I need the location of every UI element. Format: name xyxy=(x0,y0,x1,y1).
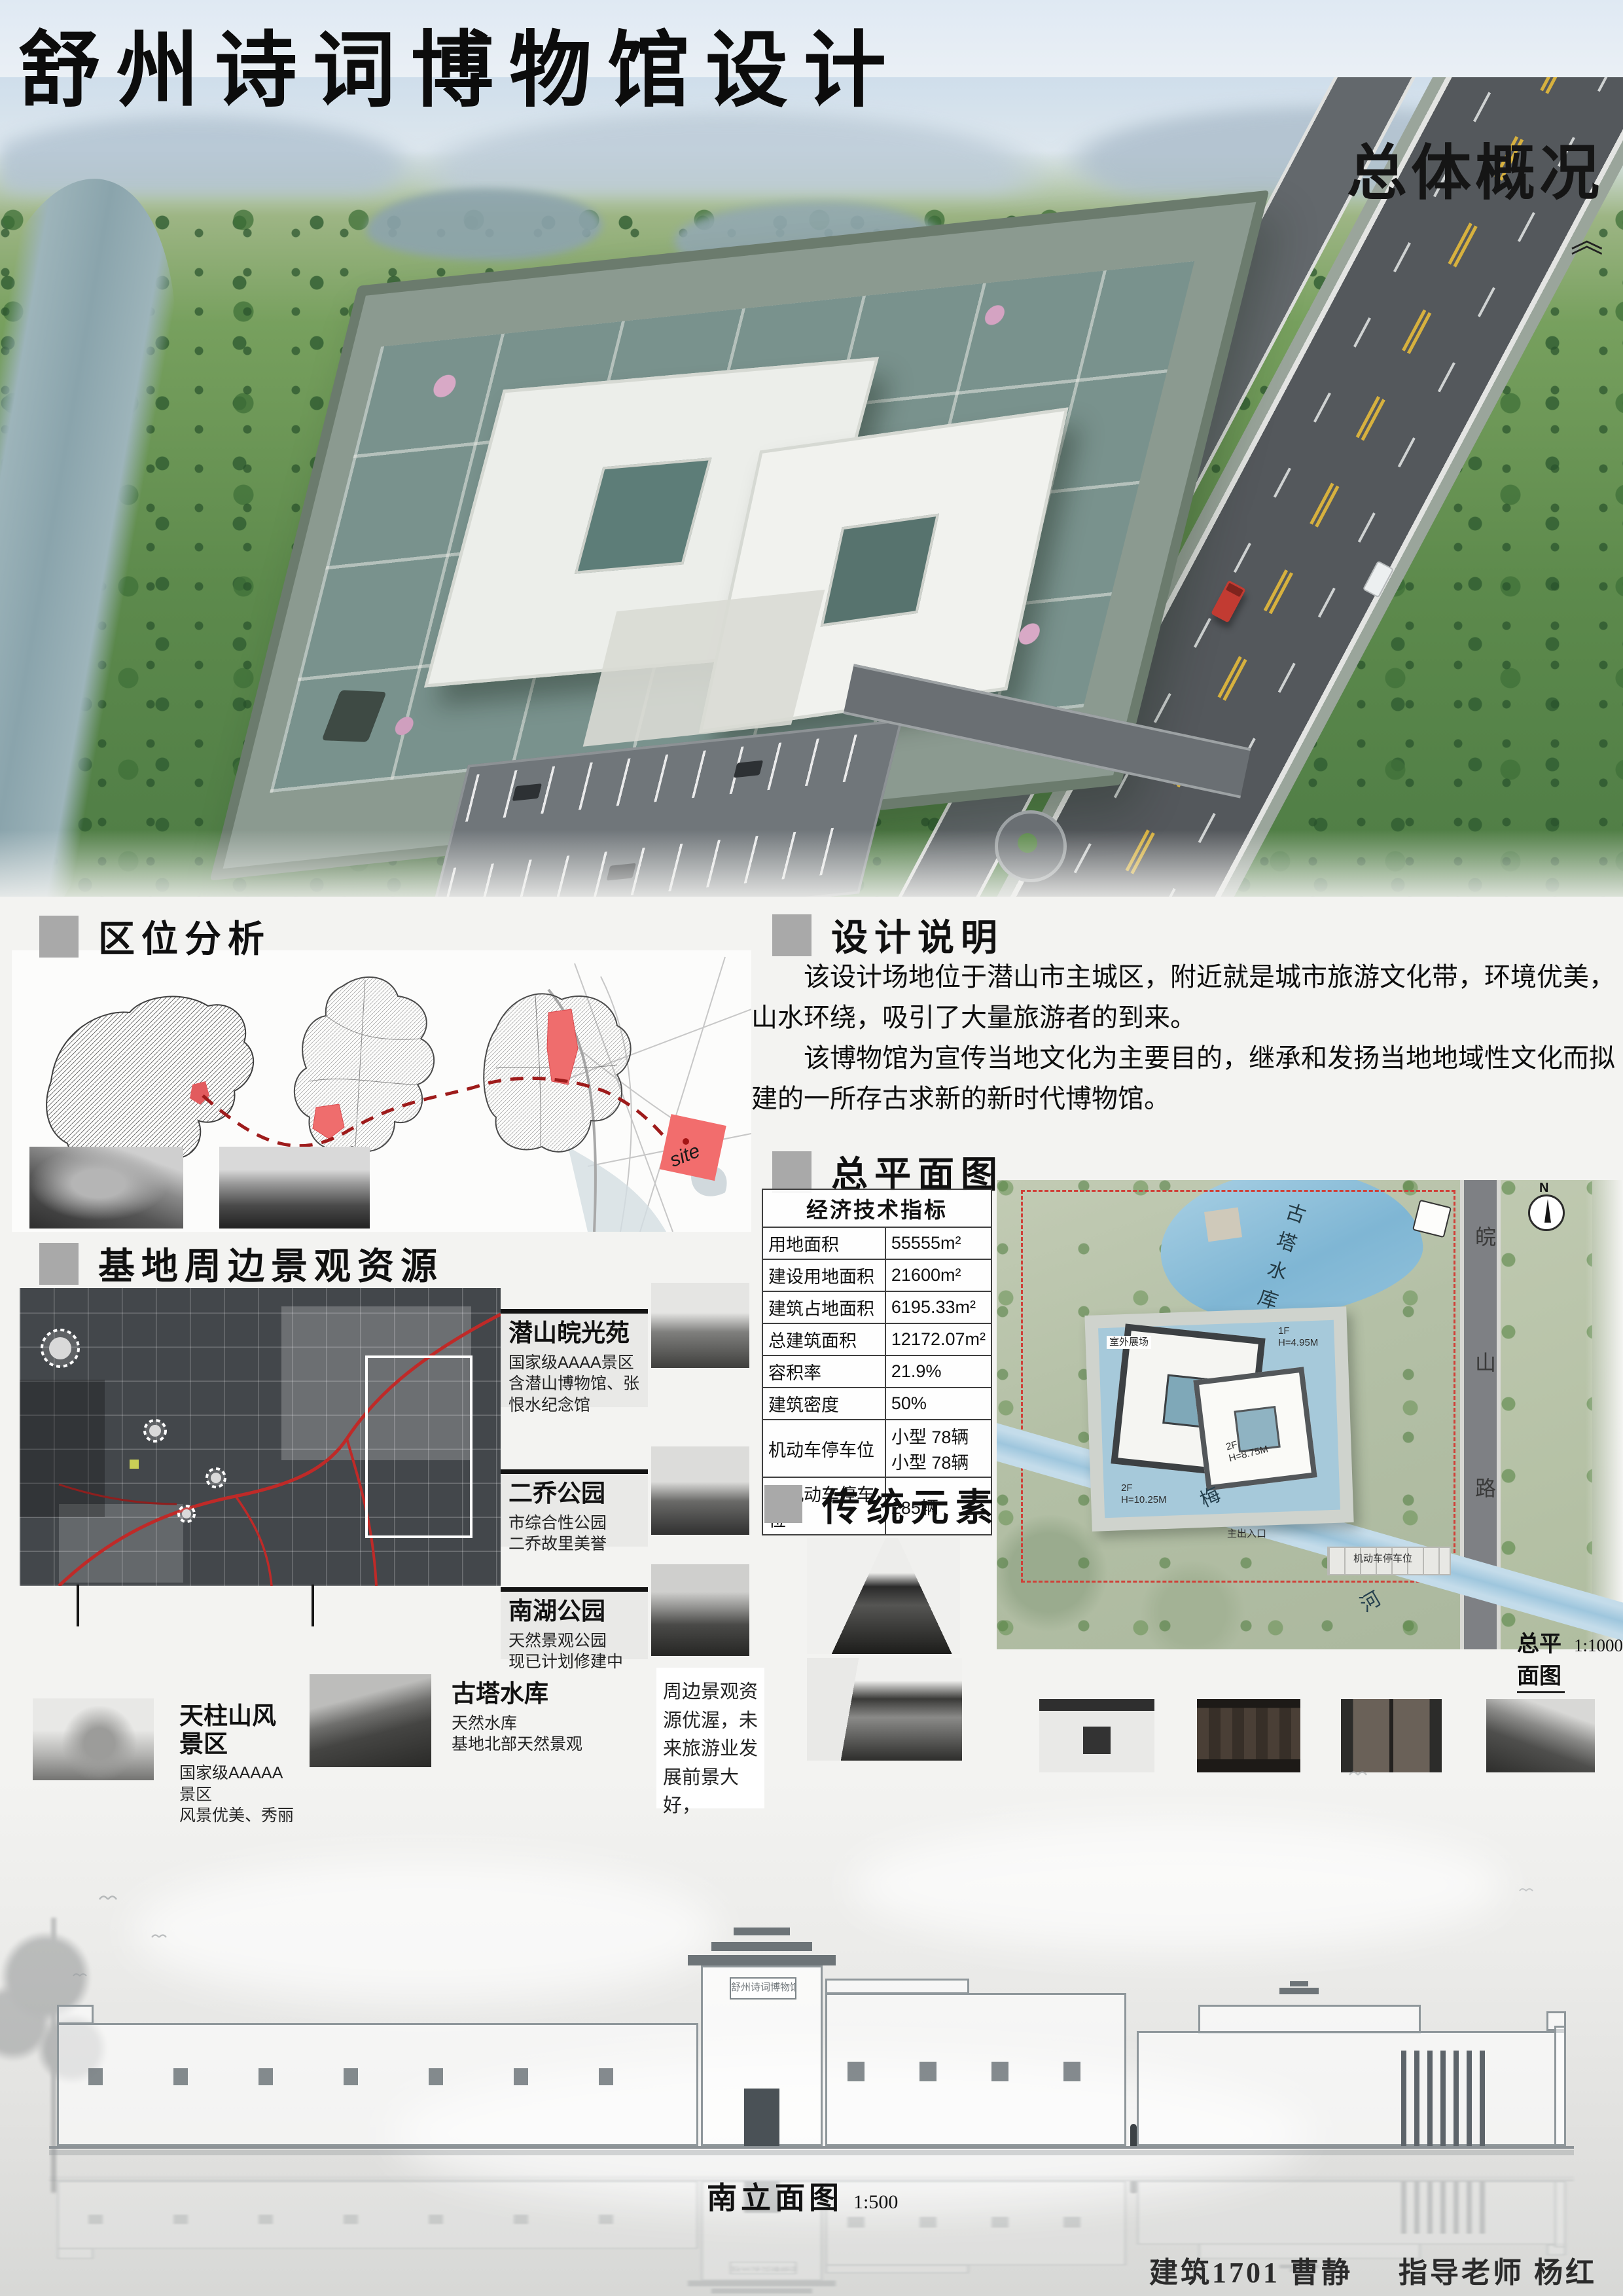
plan-outdoor-area-label: 室外展场 xyxy=(1107,1336,1151,1349)
bird-icon xyxy=(1518,1885,1534,1893)
render-bottom-fade xyxy=(0,830,1623,897)
footer-advisor: 指导老师 杨红 xyxy=(1399,2249,1597,2291)
design-notes-paragraph-1: 该设计场地位于潜山市主城区，附近就是城市旅游文化带，环境优美，山水环绕，吸引了大… xyxy=(751,957,1618,1038)
resource-label-erqiao-park: 二乔公园 市综合性公园 二乔故里美誉 xyxy=(501,1469,648,1547)
plan-caption-scale: 1:1000 xyxy=(1574,1636,1623,1656)
indicator-label: 建筑密度 xyxy=(762,1388,885,1420)
resources-note: 周边景观资源优渥，未来旅游业发展前景大好， xyxy=(656,1668,764,1808)
resource-label-nanhu-park: 南湖公园 天然景观公园 现已计划修建中 xyxy=(501,1587,648,1659)
pointer-line xyxy=(312,1585,314,1626)
photo-nanhu-park xyxy=(651,1564,749,1656)
section-location-title: 区位分析 xyxy=(98,910,271,963)
section-square-icon xyxy=(772,1151,811,1193)
plan-caption: 总平面图 1:1000 xyxy=(1517,1626,1623,1693)
resource-desc: 天然水库 基地北部天然景观 xyxy=(452,1713,590,1755)
bird-icon xyxy=(1348,1767,1368,1778)
plan-road-label: 皖山路 xyxy=(1469,1226,1499,1603)
resource-name: 古塔水库 xyxy=(452,1681,590,1709)
elevation-caption: 南立面图 1:500 xyxy=(707,2174,898,2217)
resource-desc: 天然景观公园 现已计划修建中 xyxy=(508,1630,640,1673)
quote-mark: 《 xyxy=(1565,223,1612,256)
section-design-notes-title: 设计说明 xyxy=(831,908,1004,961)
elevation-section: 舒州诗词博物馆 舒州诗词博物馆 xyxy=(49,1928,1574,2294)
resource-label-guta: 古塔水库 天然水库 基地北部天然景观 xyxy=(444,1674,597,1785)
indicator-label: 机动车停车位 xyxy=(762,1420,885,1477)
section-traditional: 传统元素 xyxy=(764,1477,1000,1532)
indicator-label: 用地面积 xyxy=(762,1227,885,1259)
site-yellow-marker xyxy=(130,1460,139,1469)
section-square-icon xyxy=(39,1243,79,1285)
section-resources: 基地周边景观资源 xyxy=(39,1237,444,1290)
section-square-icon xyxy=(764,1485,802,1523)
elevation-caption-scale: 1:500 xyxy=(853,2191,898,2214)
section-traditional-title: 传统元素 xyxy=(822,1477,1000,1532)
pond xyxy=(366,188,602,260)
section-square-icon xyxy=(39,916,79,958)
site-boundary-outline xyxy=(366,1357,471,1537)
photo-erqiao-park xyxy=(651,1446,749,1535)
photo-traditional-door xyxy=(1341,1699,1442,1772)
city-river xyxy=(568,1147,666,1232)
plan-main-entrance-label: 主出入口 xyxy=(1227,1528,1266,1540)
footer-student: 建筑1701 曹静 xyxy=(1149,2249,1353,2291)
photo-bridge-valley xyxy=(219,1147,370,1229)
north-arrow-icon: N xyxy=(1528,1194,1565,1231)
resource-name: 南湖公园 xyxy=(508,1598,640,1626)
photo-horsehead-wall-2 xyxy=(807,1658,962,1761)
bird-icon xyxy=(98,1892,118,1902)
design-notes-text: 该设计场地位于潜山市主城区，附近就是城市旅游文化带，环境优美，山水环绕，吸引了大… xyxy=(751,957,1618,1119)
resource-desc: 市综合性公园 二乔故里美誉 xyxy=(508,1513,640,1555)
design-notes-paragraph-2: 该博物馆为宣传当地文化为主要目的，继承和发扬当地地域性文化而拟建的一所存古求新的… xyxy=(751,1038,1618,1119)
resource-name: 天柱山风景区 xyxy=(179,1703,294,1759)
north-letter: N xyxy=(1539,1181,1548,1196)
photo-village-aerial xyxy=(1486,1699,1595,1772)
footer-credits: 建筑1701 曹静 指导老师 杨红 xyxy=(0,2249,1597,2291)
resource-name: 二乔公园 xyxy=(508,1480,640,1509)
satellite-roads xyxy=(20,1288,501,1586)
plan-right-fade xyxy=(1586,1180,1623,1649)
photo-wood-interior xyxy=(1197,1699,1300,1772)
photo-valley-aerial xyxy=(29,1147,183,1229)
indicator-value: 50% xyxy=(885,1388,991,1420)
overview-subtitle: 总体概况 xyxy=(1347,124,1603,211)
section-square-icon xyxy=(772,914,811,956)
indicator-label: 建筑占地面积 xyxy=(762,1291,885,1323)
section-resources-title: 基地周边景观资源 xyxy=(98,1237,444,1290)
presentation-board: 舒州诗词博物馆设计 总体概况 《 xyxy=(0,0,1623,2296)
elevation-sign-plaque: 舒州诗词博物馆 xyxy=(730,1977,796,2000)
indicator-value: 21600m² xyxy=(885,1259,991,1291)
resource-desc: 国家级AAAA景区 含潜山博物馆、张恨水纪念馆 xyxy=(508,1352,640,1416)
page-title: 舒州诗词博物馆设计 xyxy=(18,4,902,123)
indicator-value: 小型 78辆 小型 78辆 xyxy=(885,1420,991,1477)
elevation-caption-text: 南立面图 xyxy=(707,2174,843,2217)
master-plan-drawing: 古塔水库 皖山路 梅 河 室外展场 1F H=4.95M 2F H=8.75M … xyxy=(997,1180,1623,1649)
indicators-header: 经济技术指标 xyxy=(762,1189,991,1227)
plan-building-b xyxy=(1193,1367,1317,1490)
plan-parking-label: 机动车停车位 xyxy=(1353,1553,1412,1565)
indicator-value: 21.9% xyxy=(885,1355,991,1388)
plan-caption-text: 总平面图 xyxy=(1517,1626,1565,1693)
resource-name: 潜山皖光苑 xyxy=(508,1320,640,1348)
photo-wall-window xyxy=(1039,1699,1154,1772)
section-design-notes: 设计说明 xyxy=(772,908,1004,961)
indicator-value: 55555m² xyxy=(885,1227,991,1259)
photo-guta-reservoir xyxy=(310,1674,431,1767)
plan-height-label-2f: 2F H=10.25M xyxy=(1121,1482,1167,1506)
pointer-line xyxy=(77,1585,79,1626)
indicator-label: 总建筑面积 xyxy=(762,1323,885,1355)
south-elevation-drawing: 舒州诗词博物馆 xyxy=(49,1928,1574,2157)
indicator-value: 12172.07m² xyxy=(885,1323,991,1355)
indicator-value: 6195.33m² xyxy=(885,1291,991,1323)
resource-label-wanguangyuan: 潜山皖光苑 国家级AAAA景区 含潜山博物馆、张恨水纪念馆 xyxy=(501,1309,648,1407)
indicator-label: 容积率 xyxy=(762,1355,885,1388)
plan-height-label-1f: 1F H=4.95M xyxy=(1278,1325,1318,1349)
photo-horsehead-wall-1 xyxy=(807,1538,960,1654)
satellite-map xyxy=(20,1288,501,1586)
resource-label-tianzhushan: 天柱山风景区 国家级AAAAA景区 风景优美、秀丽 xyxy=(171,1696,302,1808)
photo-wanguangyuan xyxy=(651,1283,749,1368)
indicator-label: 建设用地面积 xyxy=(762,1259,885,1291)
section-location: 区位分析 xyxy=(39,910,271,963)
resource-desc: 国家级AAAAA景区 风景优美、秀丽 xyxy=(179,1763,294,1827)
